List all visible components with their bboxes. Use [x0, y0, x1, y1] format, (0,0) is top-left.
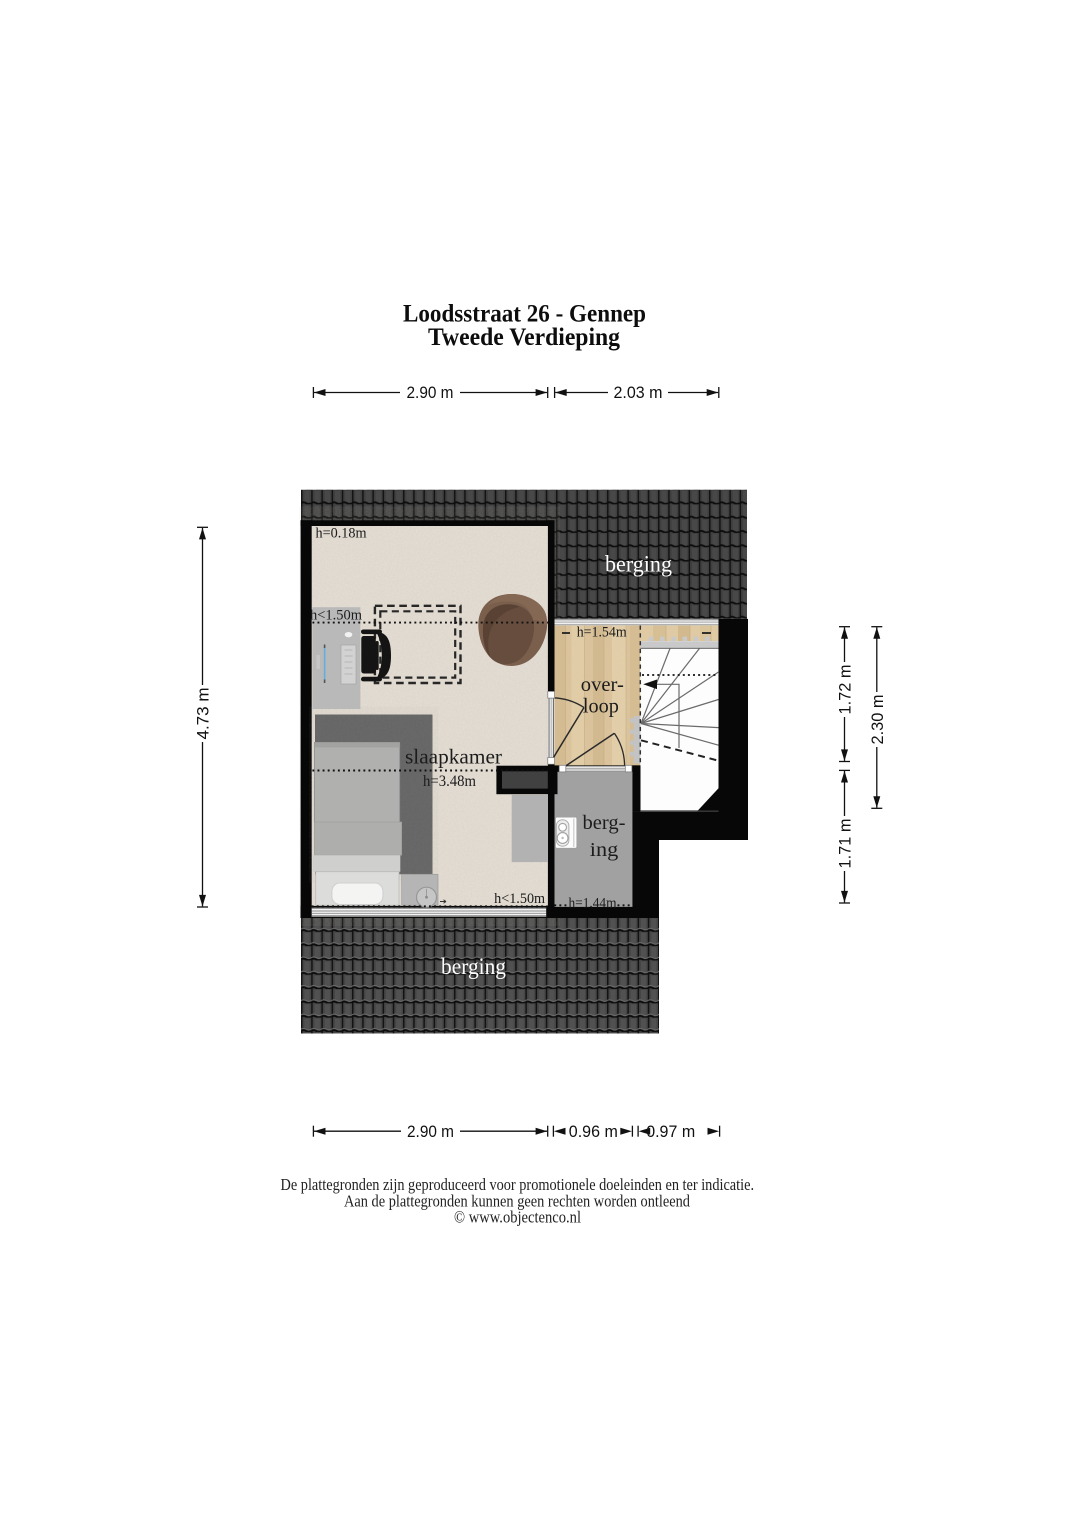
svg-text:h=0.18m: h=0.18m	[316, 526, 367, 542]
svg-text:2.90 m: 2.90 m	[407, 1123, 454, 1141]
svg-text:h=1.44m: h=1.44m	[569, 896, 617, 912]
svg-text:2.30 m: 2.30 m	[869, 695, 887, 745]
svg-text:ing: ing	[590, 839, 619, 861]
svg-text:h<1.50m: h<1.50m	[310, 608, 362, 624]
svg-text:berging: berging	[441, 954, 506, 979]
svg-text:Tweede Verdieping: Tweede Verdieping	[428, 324, 620, 351]
svg-text:slaapkamer: slaapkamer	[405, 745, 502, 769]
svg-text:h<1.50m: h<1.50m	[494, 891, 545, 907]
svg-text:loop: loop	[583, 694, 619, 718]
svg-text:0.96 m: 0.96 m	[569, 1123, 618, 1141]
svg-text:2.90 m: 2.90 m	[407, 384, 454, 402]
svg-text:berging: berging	[605, 552, 672, 577]
svg-text:4.73 m: 4.73 m	[195, 688, 213, 740]
svg-text:1.72 m: 1.72 m	[837, 665, 855, 715]
svg-text:berg-: berg-	[583, 812, 626, 834]
svg-text:h=1.54m: h=1.54m	[577, 625, 627, 641]
svg-text:h=3.48m: h=3.48m	[423, 773, 476, 790]
svg-text:0.97 m: 0.97 m	[646, 1123, 695, 1141]
svg-text:© www.objectenco.nl: © www.objectenco.nl	[454, 1208, 581, 1227]
svg-text:1.71 m: 1.71 m	[837, 819, 855, 869]
svg-text:2.03 m: 2.03 m	[614, 384, 663, 402]
svg-text:over-: over-	[581, 672, 624, 696]
